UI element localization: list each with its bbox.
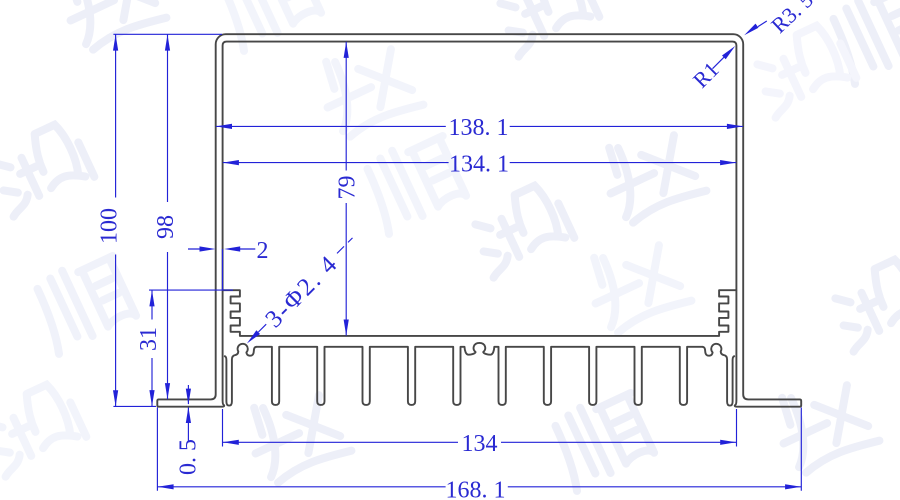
svg-text:134: 134 [462, 431, 498, 457]
svg-text:168. 1: 168. 1 [446, 477, 506, 500]
svg-text:79: 79 [335, 176, 361, 200]
svg-text:3-Φ2. 4: 3-Φ2. 4 [260, 250, 343, 333]
svg-text:134. 1: 134. 1 [449, 151, 509, 177]
svg-text:0. 5: 0. 5 [176, 439, 202, 475]
svg-text:100: 100 [97, 208, 123, 244]
svg-text:31: 31 [136, 327, 162, 351]
svg-text:138. 1: 138. 1 [449, 115, 509, 141]
svg-text:2: 2 [257, 238, 269, 264]
svg-text:98: 98 [153, 215, 179, 239]
